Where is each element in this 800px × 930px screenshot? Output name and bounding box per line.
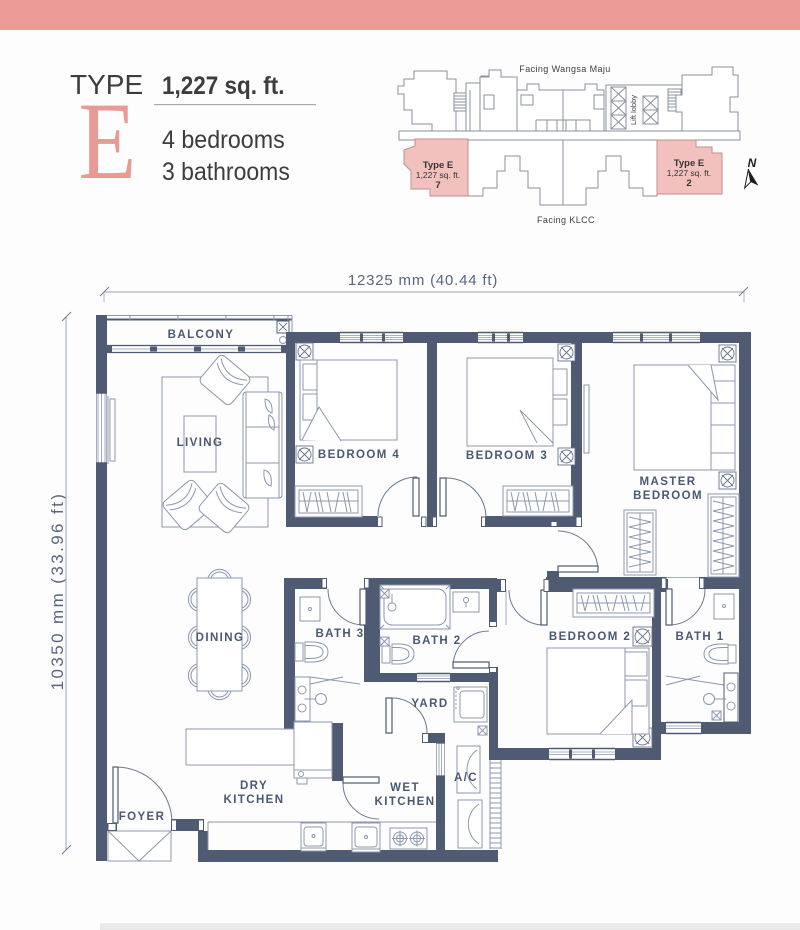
svg-text:1,227 sq. ft.: 1,227 sq. ft. — [416, 170, 460, 180]
svg-text:BALCONY: BALCONY — [168, 329, 235, 341]
svg-text:2: 2 — [686, 178, 691, 189]
svg-text:N: N — [748, 156, 757, 170]
svg-text:MASTER: MASTER — [640, 476, 697, 488]
svg-text:10350 mm (33.96 ft): 10350 mm (33.96 ft) — [48, 492, 67, 691]
svg-text:1,227 sq. ft.: 1,227 sq. ft. — [667, 168, 711, 178]
svg-text:BATH 1: BATH 1 — [675, 631, 724, 643]
svg-text:7: 7 — [435, 180, 440, 191]
svg-text:BATH 3: BATH 3 — [315, 628, 364, 640]
svg-text:12325 mm (40.44 ft): 12325 mm (40.44 ft) — [348, 272, 498, 289]
svg-text:KITCHEN: KITCHEN — [375, 796, 436, 808]
svg-text:YARD: YARD — [411, 698, 448, 710]
svg-text:BEDROOM 2: BEDROOM 2 — [549, 631, 631, 643]
svg-text:Facing Wangsa Maju: Facing Wangsa Maju — [519, 64, 610, 74]
svg-text:KITCHEN: KITCHEN — [224, 794, 285, 806]
svg-text:BATH 2: BATH 2 — [412, 635, 461, 647]
svg-text:Lift lobby: Lift lobby — [629, 95, 638, 125]
svg-text:DINING: DINING — [196, 632, 245, 644]
svg-text:A/C: A/C — [454, 772, 478, 784]
svg-text:LIVING: LIVING — [177, 437, 224, 449]
svg-text:3 bathrooms: 3 bathrooms — [162, 158, 290, 186]
svg-text:BEDROOM 4: BEDROOM 4 — [318, 449, 400, 461]
svg-text:BEDROOM: BEDROOM — [633, 490, 703, 502]
svg-text:FOYER: FOYER — [119, 811, 166, 823]
svg-text:BEDROOM 3: BEDROOM 3 — [466, 450, 548, 462]
svg-text:4 bedrooms: 4 bedrooms — [162, 126, 285, 154]
svg-text:1,227 sq. ft.: 1,227 sq. ft. — [162, 72, 284, 100]
svg-text:DRY: DRY — [240, 780, 268, 792]
svg-text:E: E — [79, 81, 137, 202]
svg-text:Facing KLCC: Facing KLCC — [537, 215, 595, 225]
svg-text:WET: WET — [390, 782, 420, 794]
